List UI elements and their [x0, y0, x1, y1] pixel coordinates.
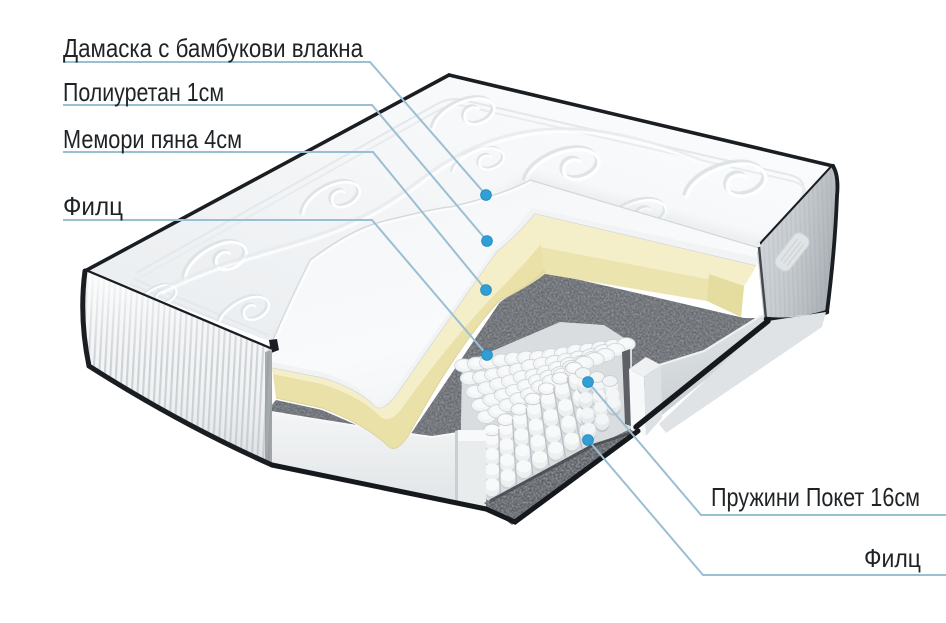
- svg-text:Филц: Филц: [864, 543, 921, 573]
- svg-text:Мемори пяна 4см: Мемори пяна 4см: [63, 124, 242, 154]
- svg-text:Дамаска с бамбукови влакна: Дамаска с бамбукови влакна: [63, 33, 363, 63]
- svg-text:Филц: Филц: [63, 191, 123, 221]
- svg-text:Пружини Покет 16см: Пружини Покет 16см: [711, 482, 920, 512]
- svg-text:Полиуретан 1см: Полиуретан 1см: [63, 77, 224, 107]
